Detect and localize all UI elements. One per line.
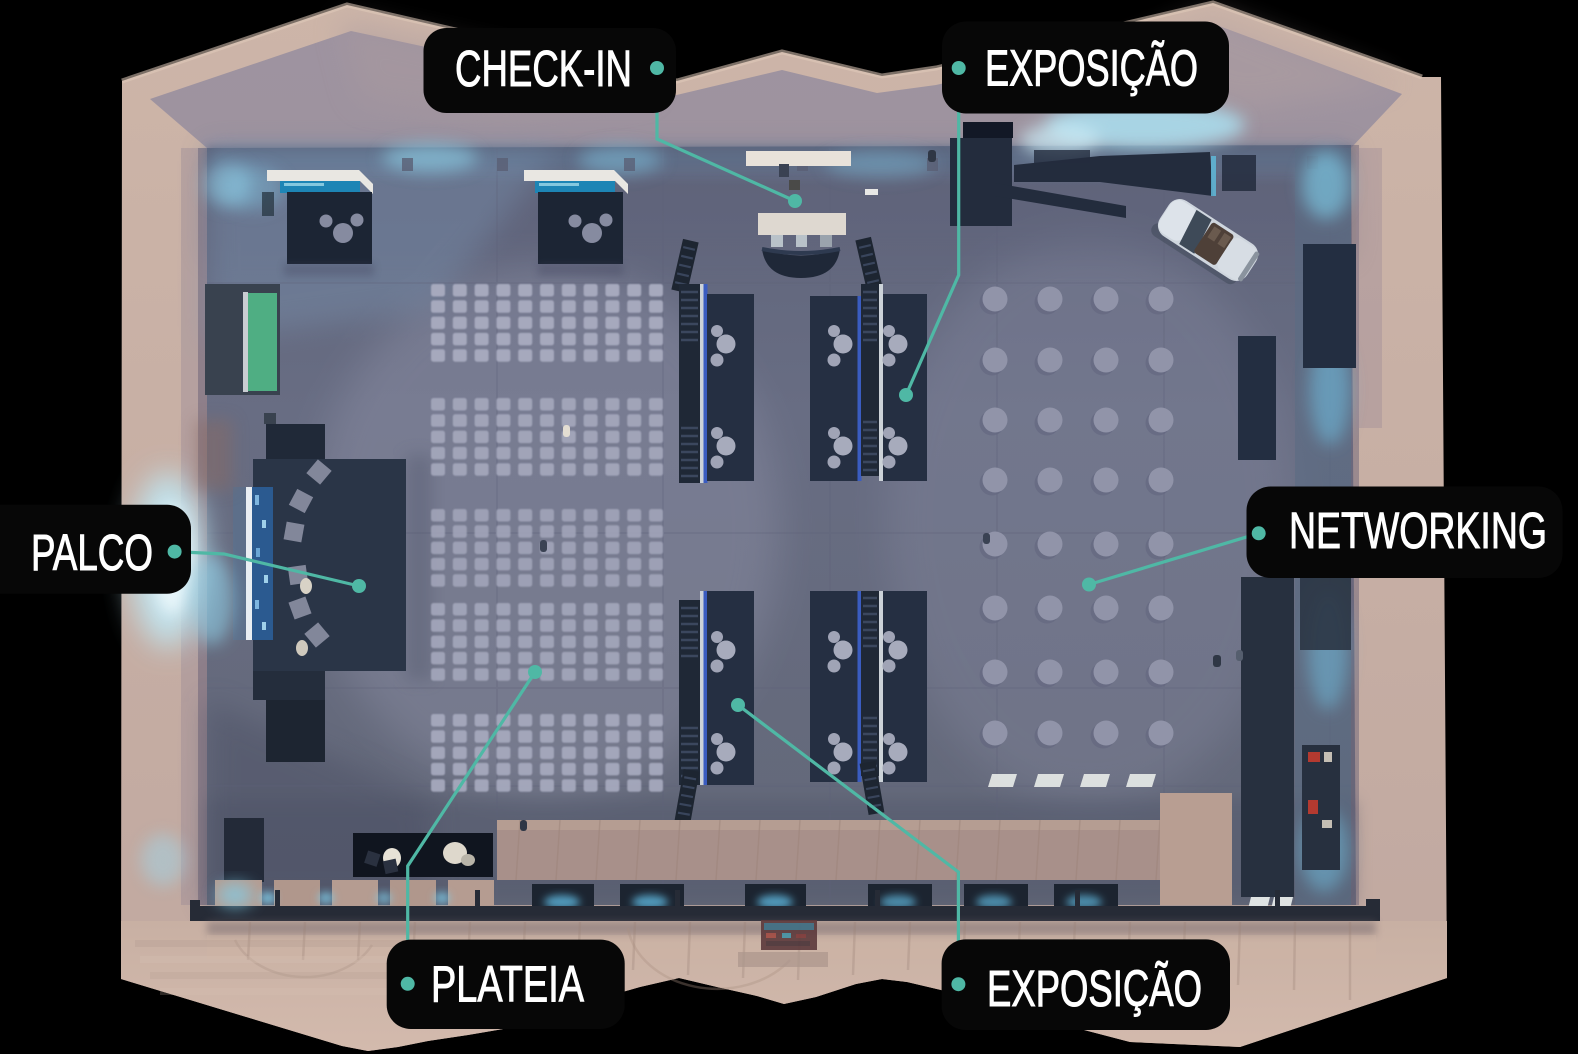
- svg-text:EXPOSIÇÃO: EXPOSIÇÃO: [985, 40, 1198, 97]
- svg-text:PLATEIA: PLATEIA: [431, 956, 584, 1013]
- svg-text:EXPOSIÇÃO: EXPOSIÇÃO: [987, 960, 1202, 1017]
- svg-text:CHECK-IN: CHECK-IN: [455, 40, 632, 97]
- svg-text:NETWORKING: NETWORKING: [1289, 502, 1547, 559]
- svg-text:PALCO: PALCO: [31, 524, 153, 581]
